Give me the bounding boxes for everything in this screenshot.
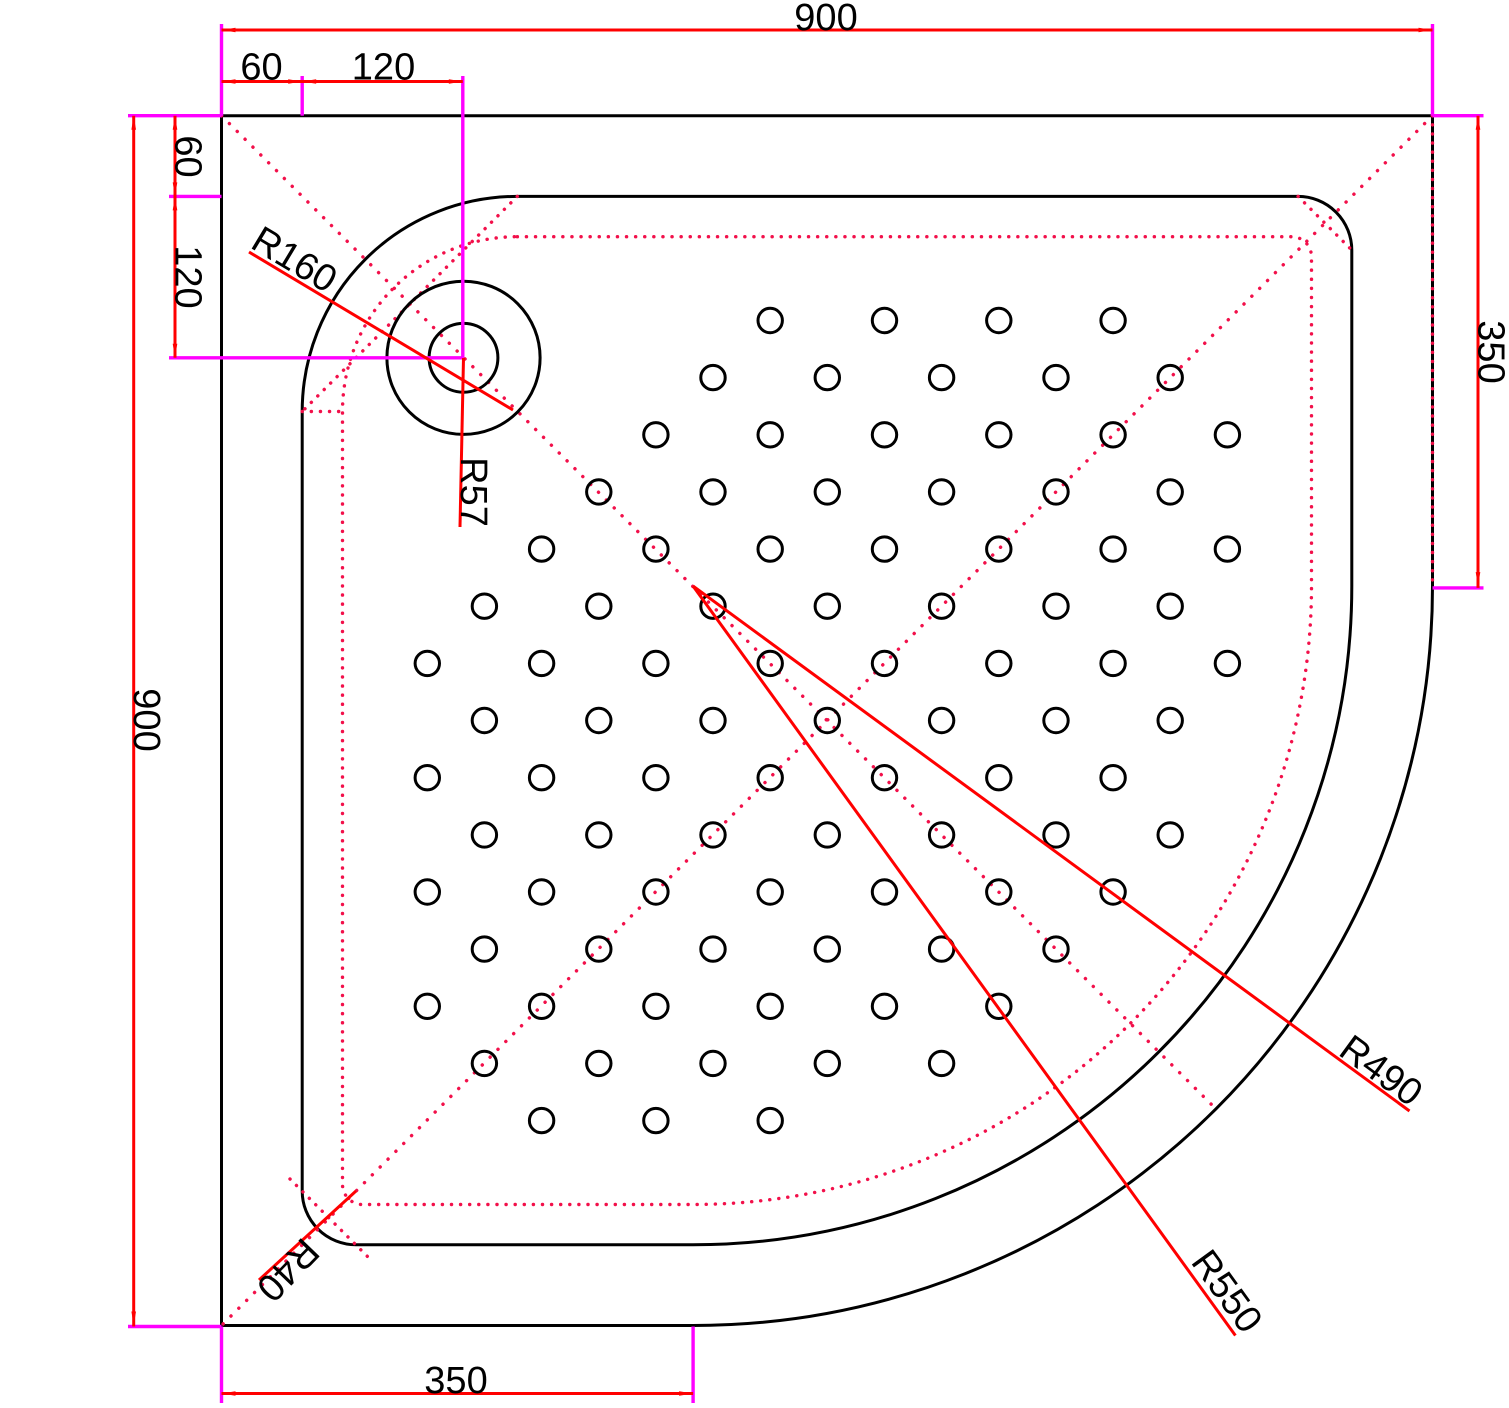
svg-text:900: 900 bbox=[794, 0, 857, 39]
svg-text:60: 60 bbox=[240, 47, 282, 89]
svg-text:60: 60 bbox=[166, 135, 208, 177]
svg-text:900: 900 bbox=[125, 688, 167, 751]
svg-text:120: 120 bbox=[166, 245, 208, 308]
svg-text:350: 350 bbox=[1470, 320, 1509, 383]
svg-text:350: 350 bbox=[424, 1360, 487, 1402]
svg-text:R57: R57 bbox=[452, 457, 494, 527]
svg-text:120: 120 bbox=[352, 47, 415, 89]
